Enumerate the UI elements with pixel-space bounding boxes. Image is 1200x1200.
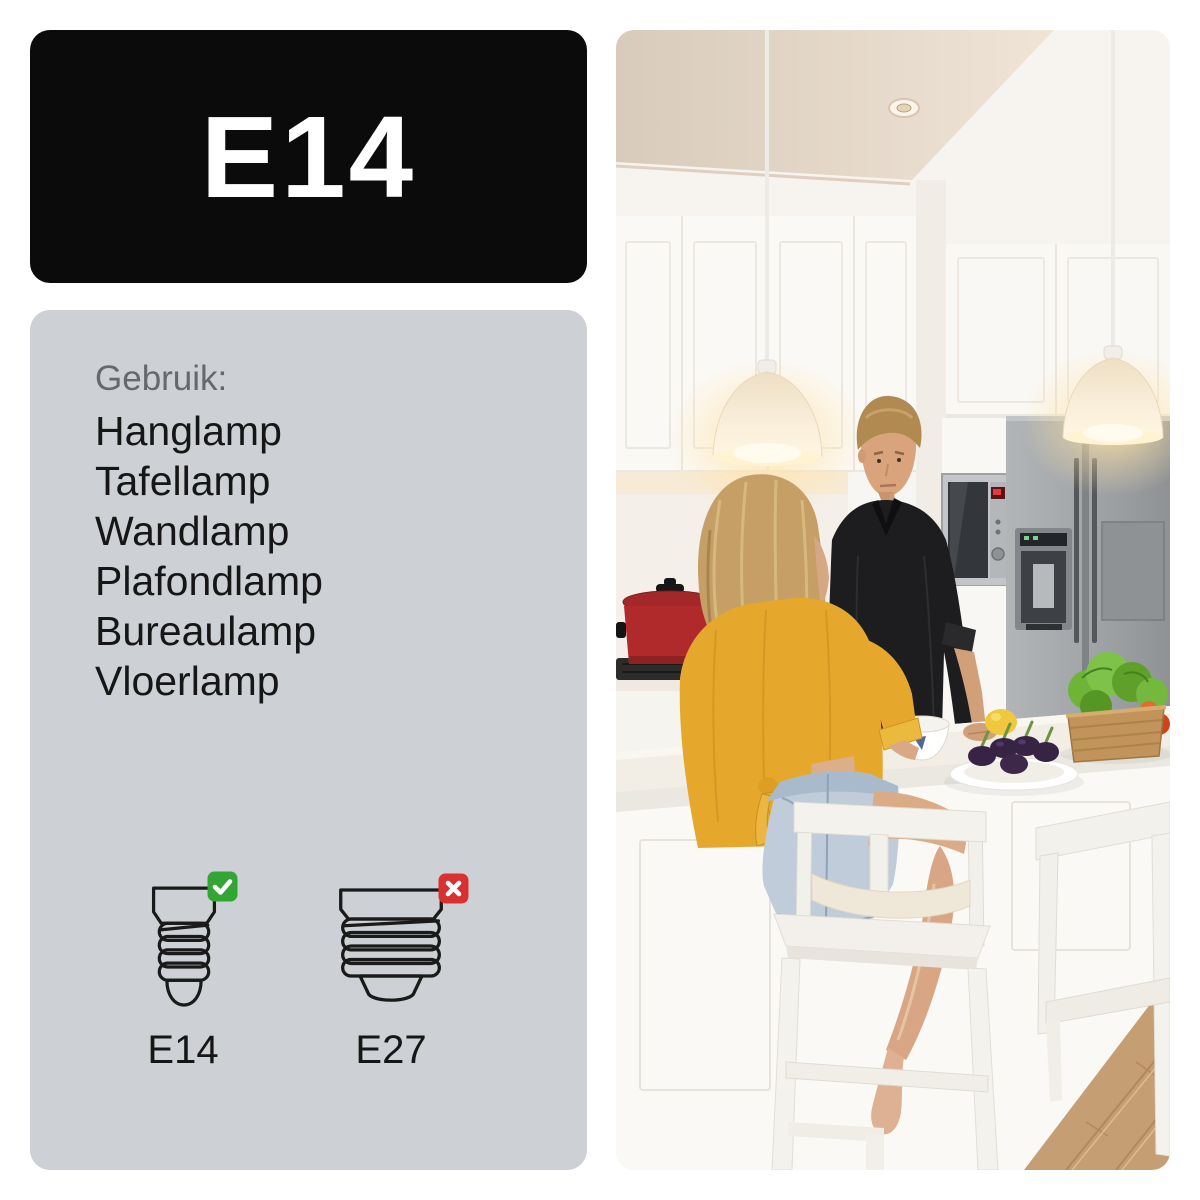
socket-e27-icon: [333, 886, 449, 1008]
kitchen-scene: [616, 30, 1170, 1170]
socket-e14-label: E14: [123, 1028, 243, 1073]
usage-list-item: Wandlamp: [95, 506, 323, 556]
usage-list: Hanglamp Tafellamp Wandlamp Plafondlamp …: [95, 406, 323, 706]
cross-icon: [438, 873, 469, 904]
size-label-text: E14: [201, 90, 416, 224]
usage-list-item: Bureaulamp: [95, 606, 323, 656]
usage-text-block: Gebruik: Hanglamp Tafellamp Wandlamp Pla…: [95, 356, 323, 706]
kitchen-photo: [616, 30, 1170, 1170]
usage-list-item: Hanglamp: [95, 406, 323, 456]
usage-panel: Gebruik: Hanglamp Tafellamp Wandlamp Pla…: [30, 310, 587, 1170]
usage-list-item: Plafondlamp: [95, 556, 323, 606]
check-icon: [207, 871, 238, 902]
lemon: [985, 709, 1017, 735]
size-label-box: E14: [30, 30, 587, 283]
product-infographic: E14 Gebruik: Hanglamp Tafellamp Wandlamp…: [0, 0, 1200, 1200]
socket-e27-label: E27: [331, 1028, 451, 1073]
usage-list-item: Vloerlamp: [95, 656, 323, 706]
usage-list-item: Tafellamp: [95, 456, 323, 506]
socket-e14-icon: [146, 884, 222, 1010]
usage-heading: Gebruik:: [95, 356, 323, 402]
